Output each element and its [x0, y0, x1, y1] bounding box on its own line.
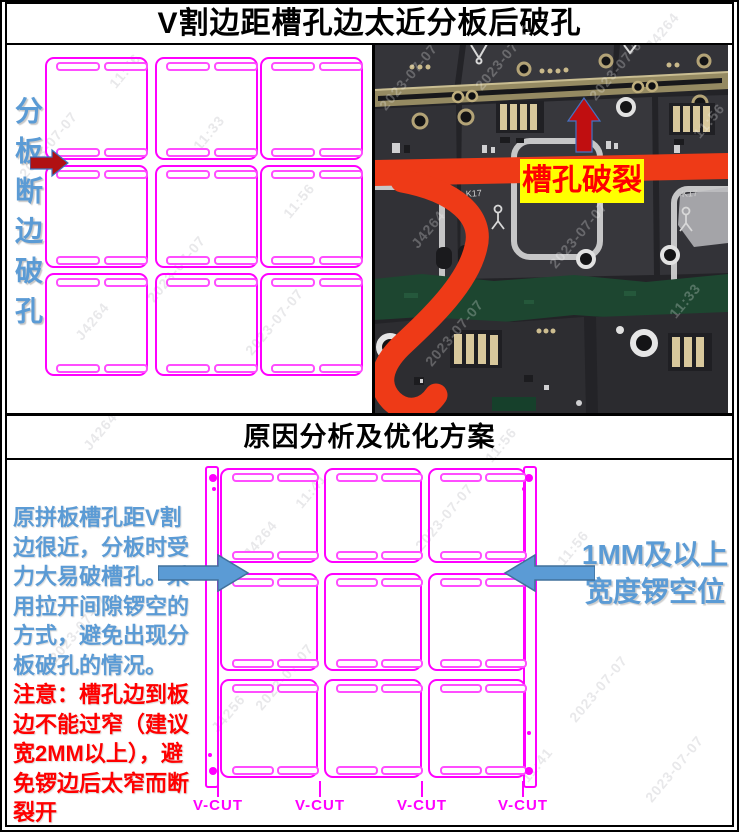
vcut-label: V-CUT [491, 797, 555, 814]
slot-hole [336, 578, 378, 587]
slot-hole [214, 62, 258, 71]
slot-hole [104, 364, 148, 373]
gap-arrow-right-icon [503, 553, 595, 593]
slot-hole [214, 256, 258, 265]
analysis-note: 原拼板槽孔距V割边很近，分板时受力大易破槽孔。采用拉开间隙锣空的方式，避免出现分… [13, 503, 201, 828]
slot-hole [319, 256, 363, 265]
slot-hole [277, 473, 319, 482]
vcut-tick [319, 781, 321, 797]
tooling-hole [209, 767, 217, 775]
slot-hole [381, 578, 423, 587]
panel-cell-top [260, 273, 363, 376]
slot-hole [166, 278, 210, 287]
slot-hole [271, 170, 315, 179]
chip-ref-text: K17 [681, 188, 698, 199]
slot-hole [440, 766, 482, 775]
side-rail-left [205, 466, 219, 788]
slot-hole [214, 170, 258, 179]
slot-hole [166, 148, 210, 157]
slot-hole [232, 684, 274, 693]
routing-width-label: 1MM及以上 宽度锣空位 [580, 536, 730, 610]
slot-hole [104, 170, 148, 179]
slot-hole [271, 62, 315, 71]
slot-hole [271, 256, 315, 265]
tooling-hole [209, 474, 217, 482]
slot-hole [232, 473, 274, 482]
tooling-hole [525, 767, 533, 775]
tooling-hole [527, 731, 531, 735]
slot-hole [104, 278, 148, 287]
vcut-label: V-CUT [186, 797, 250, 814]
slot-hole [336, 684, 378, 693]
section-title-analysis: 原因分析及优化方案 [8, 416, 731, 458]
panel-cell-top [155, 273, 258, 376]
slot-hole [277, 551, 319, 560]
vcut-label: V-CUT [288, 797, 352, 814]
slot-hole [277, 578, 319, 587]
panel-cell-top [260, 165, 363, 268]
panel-cell-bottom [220, 679, 318, 778]
slot-hole [440, 551, 482, 560]
slot-hole [271, 148, 315, 157]
slot-hole [381, 684, 423, 693]
panel-cell-bottom [428, 468, 526, 563]
slot-hole [271, 364, 315, 373]
pcb-photo: K17 K17 [374, 45, 728, 413]
slot-hole [104, 148, 148, 157]
slot-hole [166, 62, 210, 71]
break-arrow-icon [30, 147, 70, 179]
slot-hole [232, 659, 274, 668]
slot-hole [381, 766, 423, 775]
slot-hole [381, 473, 423, 482]
slot-hole [277, 766, 319, 775]
slot-hole [319, 62, 363, 71]
slot-hole [56, 364, 100, 373]
divider-under-analysis-title [6, 458, 733, 460]
panel-cell-top [45, 57, 148, 160]
warning-note-text: 注意：槽孔边到板边不能过窄（建议宽2MM以上），避免锣边后太窄而断裂开 [13, 680, 201, 828]
slot-hole [319, 170, 363, 179]
slot-hole [440, 684, 482, 693]
panel-cell-bottom [220, 468, 318, 563]
slot-hole [166, 170, 210, 179]
slot-hole [319, 148, 363, 157]
slot-hole [214, 148, 258, 157]
slot-hole [104, 256, 148, 265]
slot-hole [56, 278, 100, 287]
slot-hole [485, 473, 527, 482]
vcut-tick [217, 781, 219, 797]
slot-hole [381, 551, 423, 560]
slot-hole [56, 256, 100, 265]
slot-hole [319, 364, 363, 373]
vcut-tick [522, 781, 524, 797]
routing-width-line2: 宽度锣空位 [580, 573, 730, 610]
panel-cell-bottom [428, 679, 526, 778]
slot-hole [440, 659, 482, 668]
panel-cell-top [155, 165, 258, 268]
slot-hole [319, 278, 363, 287]
tooling-hole [522, 487, 526, 491]
watermark: 2023-07-07 [642, 732, 707, 805]
slot-hole [485, 684, 527, 693]
divider-diagram-photo [372, 45, 375, 413]
slot-hole [440, 473, 482, 482]
slot-hole [232, 766, 274, 775]
slot-hole [336, 473, 378, 482]
watermark: 2023-07-07 [566, 652, 631, 725]
slot-hole [166, 364, 210, 373]
slot-hole [485, 659, 527, 668]
slot-hole [56, 62, 100, 71]
slot-hole [336, 766, 378, 775]
page-title: V割边距槽孔边太近分板后破孔 [8, 4, 731, 44]
divider-above-analysis [6, 413, 733, 416]
tooling-hole [212, 487, 216, 491]
vcut-label: V-CUT [390, 797, 454, 814]
crack-label: 槽孔破裂 [520, 159, 644, 203]
panel-cell-bottom [324, 573, 422, 671]
tooling-hole [208, 753, 212, 757]
slot-hole [214, 364, 258, 373]
panel-cell-top [45, 165, 148, 268]
routing-width-line1: 1MM及以上 [580, 536, 730, 573]
slot-hole [166, 256, 210, 265]
panel-cell-bottom [324, 679, 422, 778]
vertical-caption: 分板断边破孔 [7, 96, 47, 336]
slot-hole [336, 659, 378, 668]
panel-cell-bottom [324, 468, 422, 563]
slot-hole [277, 659, 319, 668]
gap-arrow-left-icon [158, 553, 250, 593]
divider-under-top-title [6, 43, 733, 45]
slot-hole [381, 659, 423, 668]
slot-hole [440, 578, 482, 587]
panel-cell-top [45, 273, 148, 376]
panel-cell-top [155, 57, 258, 160]
slot-hole [485, 766, 527, 775]
vcut-tick [421, 781, 423, 797]
slot-hole [336, 551, 378, 560]
slot-hole [277, 684, 319, 693]
slot-hole [104, 62, 148, 71]
panel-cell-top [260, 57, 363, 160]
report-slide: V割边距槽孔边太近分板后破孔 原因分析及优化方案 分板断边破孔 [0, 0, 739, 832]
slot-hole [271, 278, 315, 287]
slot-hole [214, 278, 258, 287]
tooling-hole [525, 474, 533, 482]
